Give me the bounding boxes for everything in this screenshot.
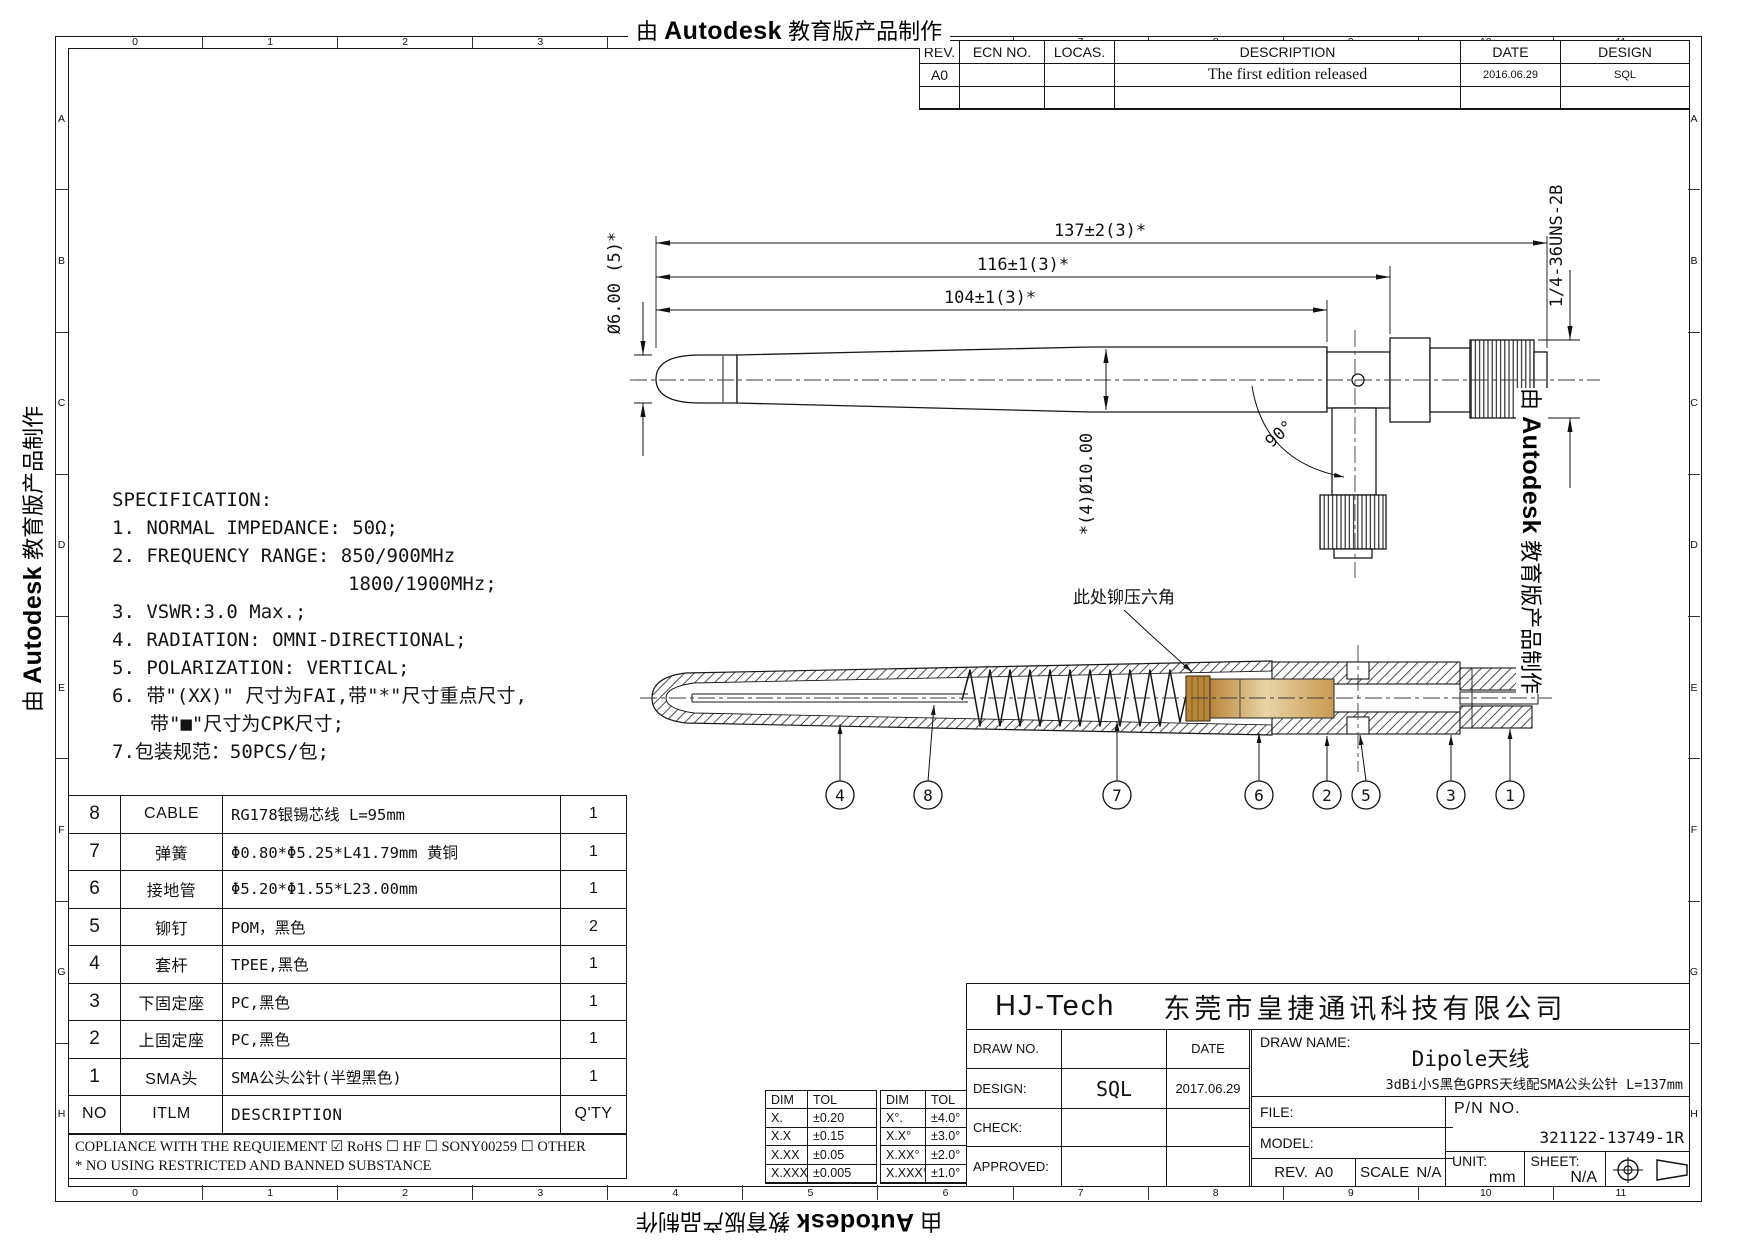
dim-diameter-6: Ø6.00 (5)* [605,232,625,334]
balloon-number: 2 [1322,786,1332,805]
balloon-number: 5 [1361,786,1371,805]
elbow-tube [1332,408,1376,495]
watermark-text: 教育版产品制作 [1518,534,1543,694]
autodesk-watermark-right: 由 Autodesk 教育版产品制作 [1516,388,1548,694]
crimp-callout: 此处铆压六角 [1073,588,1192,672]
autodesk-logo-text: Autodesk [664,17,782,45]
balloon-number: 7 [1112,786,1122,805]
autodesk-logo-text: Autodesk [19,566,47,684]
elbow-knurled-nut [1320,495,1386,549]
dim-diameter-10: *(4)Ø10.00 [1077,433,1097,535]
antenna-side-view [656,338,1547,558]
watermark-text: 由 [914,1209,942,1234]
watermark-text: 教育版产品制作 [21,406,46,566]
dim-104: 104±1(3)* [944,288,1036,308]
autodesk-watermark-bottom: 由 Autodesk 教育版产品制作 [628,1205,950,1241]
ground-tube [1210,679,1334,718]
autodesk-watermark-left: 由 Autodesk 教育版产品制作 [16,406,48,712]
antenna-drawing: 90° 137±2(3)* 116±1(3)* 104±1(3)* Ø6. [0,0,1755,1241]
watermark-text: 教育版产品制作 [636,1209,796,1234]
crimp-ferrule [1186,676,1210,721]
antenna-tip-cap [656,355,737,403]
dim-137: 137±2(3)* [1054,221,1146,241]
autodesk-logo-text: Autodesk [796,1208,914,1236]
drawing-sheet: 0 1 2 3 4 5 6 7 8 9 10 11 0 1 2 3 4 5 6 … [0,0,1755,1241]
watermark-text: 由 [1518,388,1543,416]
balloon-number: 4 [835,786,845,805]
autodesk-logo-text: Autodesk [1517,416,1545,534]
dim-116: 116±1(3)* [977,255,1069,275]
angle-label: 90° [1262,417,1298,452]
crimp-callout-label: 此处铆压六角 [1073,588,1175,607]
balloon-number: 8 [923,786,933,805]
dim-thread-spec: 1/4-36UNS-2B [1547,185,1567,308]
antenna-section-view: 此处铆压六角 [640,588,1552,809]
autodesk-watermark-top: 由 Autodesk 教育版产品制作 [628,12,950,48]
balloon-number: 1 [1505,786,1515,805]
balloon-number: 3 [1446,786,1456,805]
watermark-text: 教育版产品制作 [782,19,942,44]
sma-lower [1460,706,1532,728]
watermark-text: 由 [21,684,46,712]
antenna-body [737,347,1327,412]
balloon-number: 6 [1254,786,1264,805]
elbow-end [1334,549,1372,558]
watermark-text: 由 [636,19,664,44]
